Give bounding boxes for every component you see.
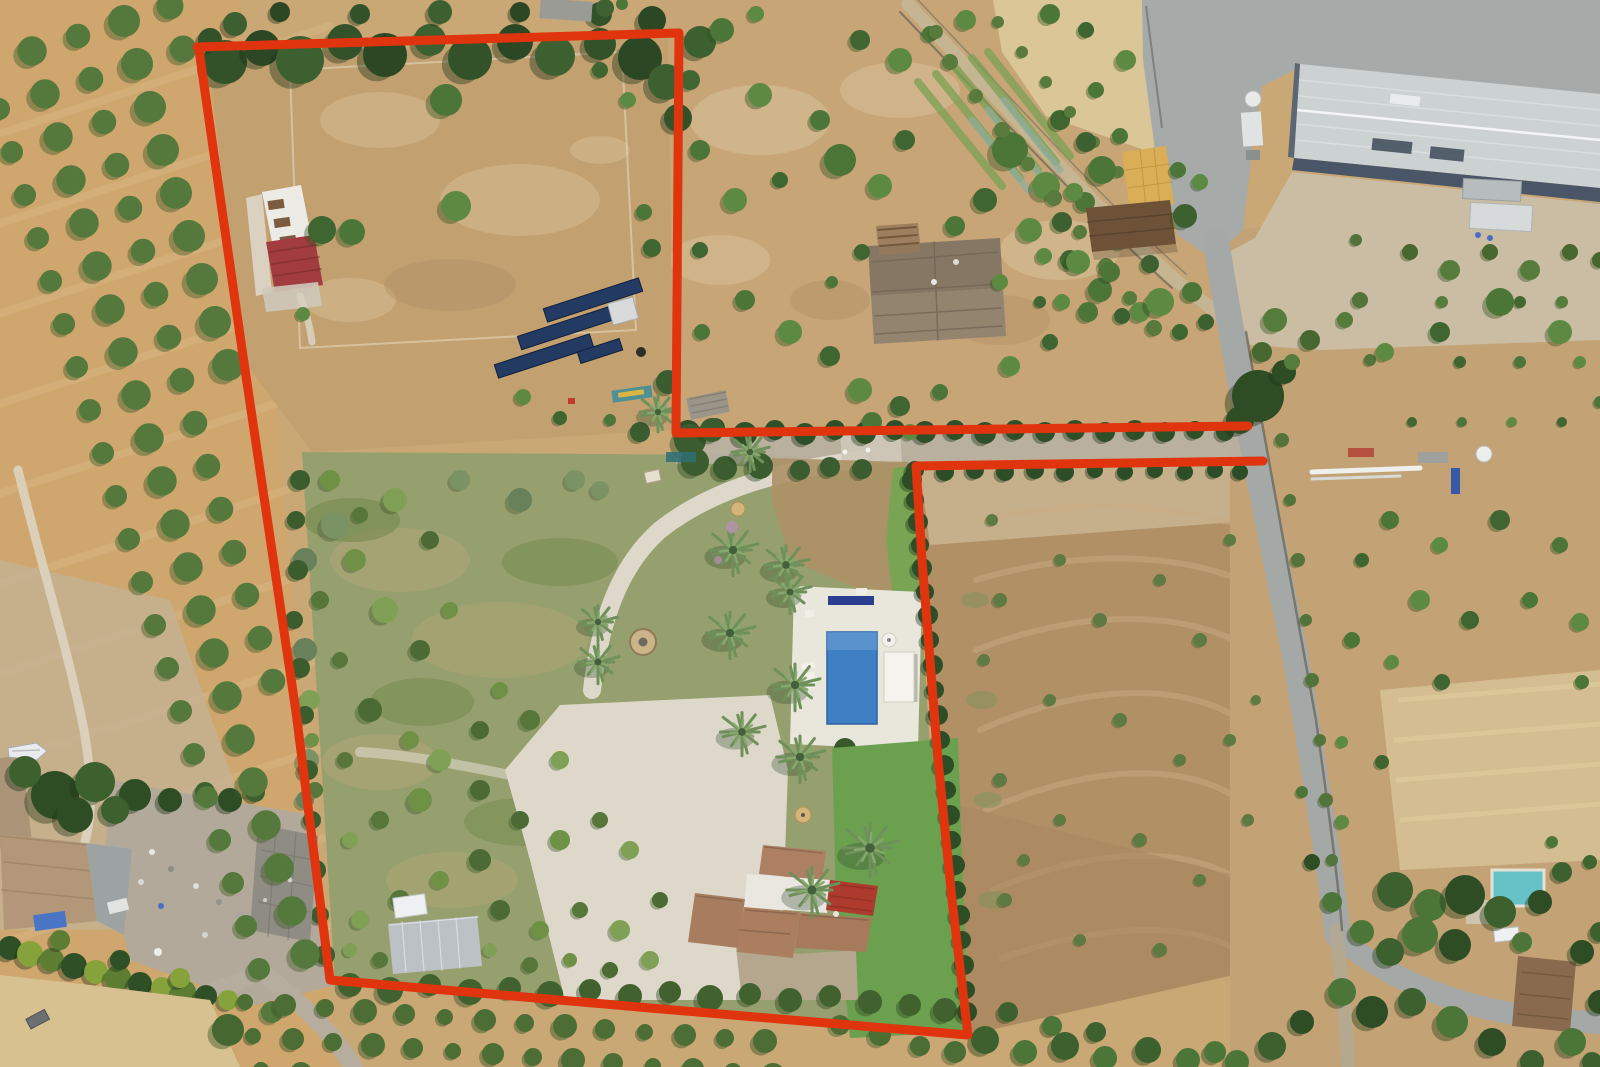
round-water-tank [1476,446,1492,462]
roadside-bush-west [1305,673,1319,687]
olive-orchard-south [245,1028,261,1044]
palm-tree-crown [808,886,817,895]
patio-area-tree [1146,288,1174,316]
warehouse-yard-tree [1252,342,1272,362]
bottom-green-band-tree [1013,1040,1037,1064]
warehouse-yard-tree [1300,330,1320,350]
field-shrub [1194,874,1206,886]
neighbor-parcel-tree [854,244,870,260]
garden-shrub [492,682,508,698]
warehouse-yard-tree [1562,244,1578,260]
olive-orchard-west [183,411,208,436]
field-shrub [1054,814,1066,826]
olive-orchard-west [147,466,177,496]
bottom-green-band-tree [1086,1022,1106,1042]
east-field-tree [1546,836,1558,848]
garden-shrub [652,892,668,908]
olive-orchard-west [118,196,143,221]
warehouse-yard-tree [1556,296,1568,308]
roadside-bush-west [1314,734,1326,746]
blue-drums [1487,235,1493,241]
warehouse-yard-tree [1263,308,1287,332]
east-field-tree [1410,590,1430,610]
southeast-tree-cluster [1290,1010,1314,1034]
neighbor-parcel-tree [895,130,915,150]
house-chimney [833,911,839,917]
olive-orchard-west [14,184,36,206]
warehouse-yard-tree [1440,260,1460,280]
lane-hedge-south [1232,464,1248,480]
southeast-tree-cluster [1328,978,1356,1006]
neighbor-parcel-tree [748,6,764,22]
track-side-bush [1146,320,1162,336]
olive-orchard-west [105,153,130,178]
olive-orchard-west [170,36,197,63]
east-field-tree [1376,343,1394,361]
olive-orchard-south [753,1029,777,1053]
southeast-tree-cluster [1258,1032,1286,1060]
neighbor-parcel-tree [1040,4,1060,24]
grey-shed-top-edge [539,0,592,22]
patio-area-tree [1141,255,1159,273]
track-side-bush [1064,106,1076,118]
olive-orchard-south [482,1043,504,1065]
red-trailer [1348,448,1374,457]
garden-shrub [372,952,388,968]
boundary-tree-row-west [290,470,310,490]
olive-orchard-west [173,552,203,582]
garden-olive-tree [591,481,609,499]
olive-orchard-south [716,1029,734,1047]
garden-green-patch [502,538,618,586]
pool-cover-roller [828,596,874,605]
garden-top-trees [820,457,840,477]
bottom-hedge-trees [659,981,681,1003]
white-silo-tank [1245,91,1261,107]
field-weed-patch [966,691,998,709]
field-shrub [1044,694,1056,706]
flowering-bush [726,521,738,533]
neighbor-parcel-tree [973,188,997,212]
southeast-tree-cluster [1304,854,1320,870]
garden-shrub [551,751,569,769]
field-shrub [1193,633,1207,647]
olive-orchard-south [237,994,253,1010]
olive-orchard-west [235,915,257,937]
neighbor-parcel-tree [945,216,965,236]
garden-shrub [442,602,458,618]
olive-orchard-south [474,1009,496,1031]
olive-orchard-west [248,958,270,980]
garden-shrub [641,951,659,969]
olive-orchard-west [157,657,179,679]
neighbor-parcel-tree [710,18,734,42]
southeast-tree-cluster [1436,1006,1468,1038]
garden-shrub [563,953,577,967]
track-side-bush [929,25,943,39]
track-side-bush [1073,225,1087,239]
old-tire [636,347,646,357]
flowering-bush [714,556,722,564]
track-side-bush [1046,190,1062,206]
east-field-tree [1457,417,1467,427]
olive-orchard-west [131,571,153,593]
neighbor-parcel-tree [1172,324,1188,340]
neighbor-parcel-tree [723,188,747,212]
neighbor-parcel-tree [824,144,856,176]
warehouse-yard-tree [1514,296,1526,308]
neighbor-parcel-tree [1088,82,1104,98]
garden-shrub [490,900,510,920]
olive-orchard-south [274,994,296,1016]
neighbor-parcel-tree [850,30,870,50]
neighbor-parcel-tree [888,48,912,72]
top-boundary-hedge-trees [510,2,530,22]
southeast-tree-cluster [1558,1028,1586,1056]
garden-shrub [352,507,368,523]
olive-orchard-west [173,220,205,252]
field-shrub [993,773,1007,787]
bottom-green-band-tree [1204,1041,1226,1063]
field-shrub [1242,814,1254,826]
drone-aerial-photo [0,0,1600,1067]
farm-pine-cluster [9,756,41,788]
olive-orchard-west [199,306,231,338]
roadside-bush-east [1352,292,1368,308]
aerial-photo [0,0,1600,1067]
north-field-tree [643,239,661,257]
warehouse-yard-tree [1337,312,1353,328]
east-field-tree [1575,675,1589,689]
top-boundary-hedge-trees [223,12,247,36]
garden-shrub [342,832,358,848]
farm-pine-cluster [75,762,115,802]
patio-area-tree [1076,132,1096,152]
garden-shrub [470,780,490,800]
south-orchard-extra [944,1041,966,1063]
southeast-tree-cluster [1570,940,1594,964]
palm-tree-crown [729,546,737,554]
olive-orchard-west [121,48,153,80]
olive-orchard-west [30,79,60,109]
southeast-tree-cluster [1402,917,1438,953]
farmyard-clutter [149,849,155,855]
east-field-tree [1407,417,1417,427]
olive-orchard-west [196,454,221,479]
garden-shrub [383,488,407,512]
garden-olive-tree [293,638,317,662]
farm-hedge-row [50,930,70,950]
north-field-tree [296,307,310,321]
bottom-green-band-tree [1042,1016,1062,1036]
track-side-bush [1021,157,1035,171]
garden-shrub [337,752,353,768]
east-field-tree [1454,356,1466,368]
field-shrub [1113,713,1127,727]
olive-orchard-west [92,442,114,464]
garden-shrub [469,849,491,871]
warehouse-yard-tree [1284,354,1300,370]
garden-olive-tree [321,511,349,539]
bottom-hedge-trees [778,988,802,1012]
house-roof-west-wing [688,893,745,948]
house-chimney [753,875,759,881]
east-field-tree [1355,553,1369,567]
neighbor-parcel-tree [810,110,830,130]
farmyard-clutter [168,866,174,872]
grey-unit [1246,150,1260,160]
storage-container [1463,178,1522,201]
garden-top-trees [852,459,872,479]
olive-orchard-west [196,786,218,808]
patio-area-tree [1066,250,1090,274]
patio-area-tree [1036,248,1052,264]
southeast-tree-cluster [1350,920,1374,944]
east-field-tree [1434,674,1450,690]
bottom-hedge-trees [899,994,921,1016]
olive-orchard-west [118,528,140,550]
east-field-tree [1490,510,1510,530]
patio-area-tree [1114,308,1130,324]
farmhouse-chimney [931,279,937,285]
track-side-bush [1016,46,1028,58]
palm-tree-crown [655,409,661,415]
bottom-green-band-tree [998,1002,1018,1022]
olive-orchard-west [222,872,244,894]
garden-shrub [320,470,340,490]
olive-orchard-west [1,141,23,163]
neighbor-parcel-tree [772,172,788,188]
bottom-hedge-trees [697,985,723,1011]
gate-pillars [843,450,848,455]
garden-green-patch [370,678,474,726]
old-pool-cover-strip [666,452,696,462]
east-field-tree [1385,655,1399,669]
white-tank [1241,111,1263,146]
southeast-tree-cluster [1552,862,1572,882]
garden-shrub [332,652,348,668]
garden-shed [644,469,661,483]
farmyard-clutter [158,903,164,909]
bottom-hedge-trees [858,990,882,1014]
farm-hedge-row [110,950,130,970]
sand-circle-center [801,813,805,817]
neighbor-parcel-tree [1078,22,1094,38]
warehouse-yard-tree [1520,260,1540,280]
top-boundary-hedge-trees [350,4,370,24]
olive-orchard-south [674,1024,696,1046]
track-side-bush [994,122,1010,138]
palm-tree-crown [594,658,601,665]
ramp-speckles [263,898,267,902]
bottom-green-band-tree [1051,1032,1079,1060]
patio-area-tree [1198,314,1214,330]
field-shrub [998,893,1012,907]
olive-orchard-south [437,1009,453,1025]
southeast-tree-cluster [1528,890,1552,914]
olive-orchard-west [277,896,307,926]
north-field-tree [441,191,471,221]
palm-tree-crown [796,753,804,761]
east-field-tree [1571,613,1589,631]
field-shrub [1174,754,1186,766]
dirt-patch [320,92,440,148]
neighbor-parcel-tree [735,290,755,310]
garden-shrub [592,812,608,828]
garden-shrub [572,902,588,918]
olive-orchard-west [160,509,190,539]
east-field-tree [1375,755,1389,769]
olive-orchard-south [595,1019,615,1039]
olive-orchard-west [183,743,205,765]
farmhouse-chimney [953,259,959,265]
patio-area-tree [1112,128,1128,144]
field-shrub [986,514,998,526]
garden-shrub [311,591,329,609]
east-field-tree [1430,322,1450,342]
east-field-tree [1336,736,1348,748]
garden-shrub [531,921,549,939]
olive-orchard-west [157,325,182,350]
north-field-tree [553,411,567,425]
olive-orchard-west [160,177,192,209]
neighbor-parcel-tree [692,242,708,258]
southeast-tree-cluster [1512,932,1532,952]
olive-orchard-south [445,1043,461,1059]
field-shrub [978,654,990,666]
garden-shrub [343,943,357,957]
olive-orchard-west [134,423,164,453]
olive-orchard-west [131,239,156,264]
boundary-tree-row-west [288,560,308,580]
olive-orchard-west [144,614,166,636]
neighbor-parcel-tree [748,83,772,107]
north-field-tree [515,389,531,405]
southeast-tree-cluster [1478,1028,1506,1056]
neighbor-parcel-tree [848,378,872,402]
warehouse-yard-tree [1402,244,1418,260]
brown-roof-house [1086,200,1176,252]
southeast-tree-cluster [1398,988,1426,1016]
east-field-tree [1461,611,1479,629]
garden-shrub [410,640,430,660]
top-boundary-hedge-trees [428,0,452,24]
olive-orchard-south [361,1033,385,1057]
parasol-pole [887,638,891,642]
neighbor-parcel-tree [956,10,976,30]
east-field-tree [1548,320,1572,344]
neighbor-parcel-tree [932,384,948,400]
neighbor-parcel-tree [820,346,840,366]
north-field-tree [604,414,616,426]
olive-orchard-west [264,853,294,883]
olive-orchard-west [43,122,73,152]
farm-pine-cluster [158,788,182,812]
neighbor-parcel-tree [1116,50,1136,70]
garden-shrub [520,710,540,730]
bottom-hedge-trees [819,985,841,1007]
field-shrub [1224,534,1236,546]
patio-area-tree [1192,174,1208,190]
olive-orchard-west [108,337,138,367]
olive-orchard-south [403,1038,423,1058]
garden-shrub [522,957,538,973]
palm-tree-crown [786,588,793,595]
southeast-tree-cluster [1484,896,1516,928]
garden-shrub [344,549,366,571]
farmyard-clutter [154,948,162,956]
olive-orchard-west [56,165,86,195]
olive-orchard-west [199,638,229,668]
silver-tank [1469,202,1532,231]
neighbor-parcel-tree [890,396,910,416]
farm-hedge-row [218,990,238,1010]
olive-orchard-west [212,681,242,711]
garden-dry-patch [412,602,588,678]
garden-shrub [483,943,497,957]
olive-orchard-west [121,380,151,410]
olive-orchard-west [225,724,255,754]
garden-shrub [429,749,451,771]
olive-orchard-west [251,810,281,840]
garden-shrub [401,731,419,749]
patio-area-tree [1088,156,1116,184]
east-field-tree [1552,537,1568,553]
palm-tree-crown [738,728,746,736]
bottom-green-band-tree [971,1026,999,1054]
olive-orchard-west [82,251,112,281]
neighbor-parcel-tree [826,276,838,288]
olive-orchard-west [238,767,268,797]
olive-orchard-south [324,1033,342,1051]
olive-orchard-west [144,282,169,307]
southeast-tree-cluster [1439,929,1471,961]
olive-orchard-west [17,36,47,66]
swimming-pool-shallow-end [827,632,877,650]
neighbor-parcel-tree [868,174,892,198]
boat-hull-line [12,750,40,751]
palm-tree-crown [747,449,753,455]
blue-equipment [1451,468,1460,494]
field-shrub [1251,695,1261,705]
olive-orchard-west [290,939,320,969]
east-field-tree [1522,592,1538,608]
olive-orchard-west [92,110,117,135]
north-field-tree [308,216,336,244]
olive-orchard-west [105,485,127,507]
olive-orchard-west [69,208,99,238]
garden-olive-tree [565,470,585,490]
neighbor-parcel-tree [1034,296,1046,308]
olive-orchard-west [222,540,247,565]
north-field-tree [636,204,652,220]
field-shrub [1018,854,1030,866]
olive-orchard-south [553,1014,577,1038]
east-field-tree [1381,511,1399,529]
olive-orchard-west [66,24,91,49]
patio-area-tree [1078,302,1098,322]
track-side-bush [992,16,1004,28]
boundary-tree-row-west [287,511,305,529]
east-field-tree [1486,288,1514,316]
track-side-bush [1123,291,1137,305]
garden-shrub [421,531,439,549]
roadside-bush-west [1326,854,1338,866]
garden-shrub [610,920,630,940]
olive-orchard-south [395,1004,415,1024]
garden-shrub [511,811,529,829]
garden-shrub [351,911,369,929]
